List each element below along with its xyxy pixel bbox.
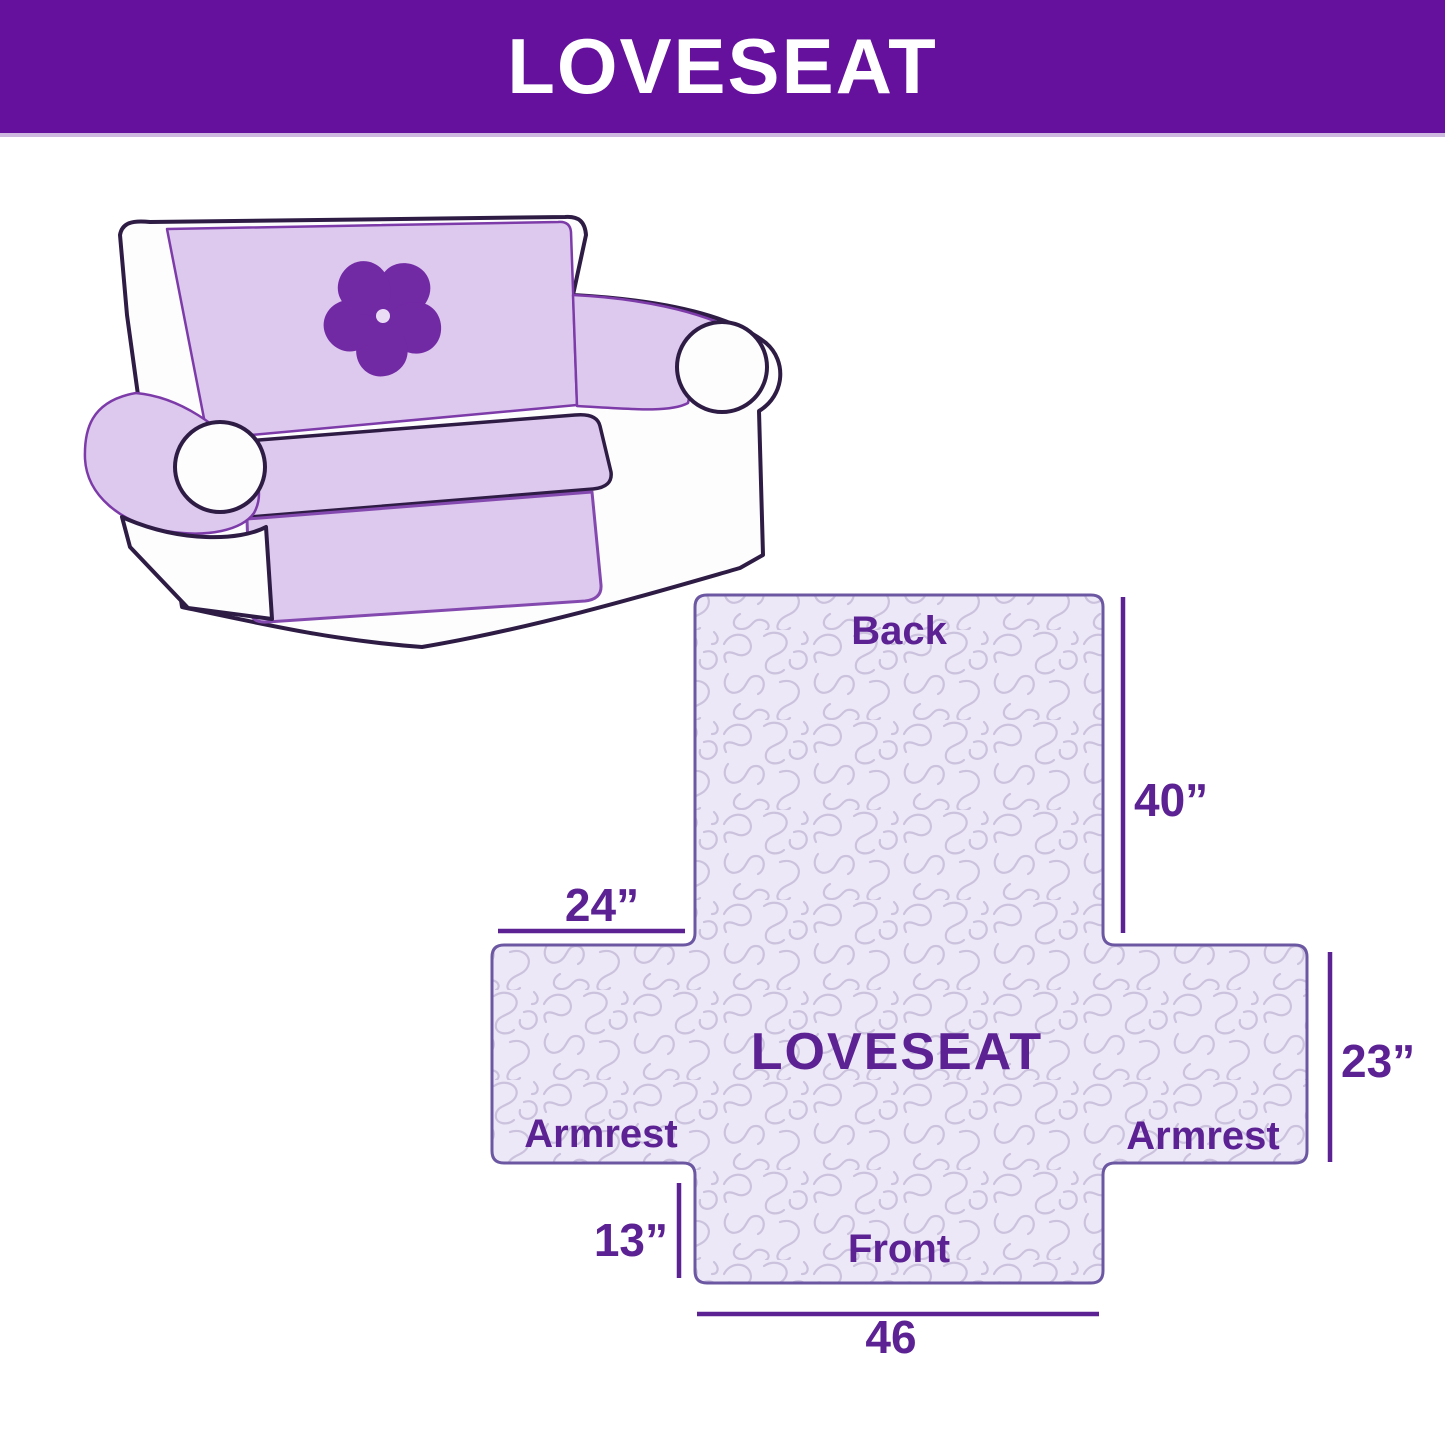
armrest-left-label: Armrest	[524, 1112, 677, 1156]
dim-24-label: 24”	[565, 879, 639, 931]
armrest-right-label: Armrest	[1126, 1114, 1279, 1158]
dim-13-label: 13”	[594, 1214, 668, 1266]
cover-outline	[492, 595, 1307, 1283]
dim-46-label: 46	[865, 1311, 916, 1363]
sofa-illustration	[85, 217, 780, 647]
right-arm-scroll	[677, 322, 767, 412]
cover-flat-diagram: Back LOVESEAT Armrest Armrest Front 24” …	[492, 595, 1415, 1363]
dim-23-label: 23”	[1341, 1035, 1415, 1087]
back-section-label: Back	[851, 609, 947, 653]
left-arm-scroll	[175, 422, 265, 512]
infographic-canvas: Back LOVESEAT Armrest Armrest Front 24” …	[0, 0, 1445, 1445]
center-loveseat-label: LOVESEAT	[751, 1023, 1043, 1081]
front-section-label: Front	[848, 1227, 950, 1271]
dim-40-label: 40”	[1134, 774, 1208, 826]
